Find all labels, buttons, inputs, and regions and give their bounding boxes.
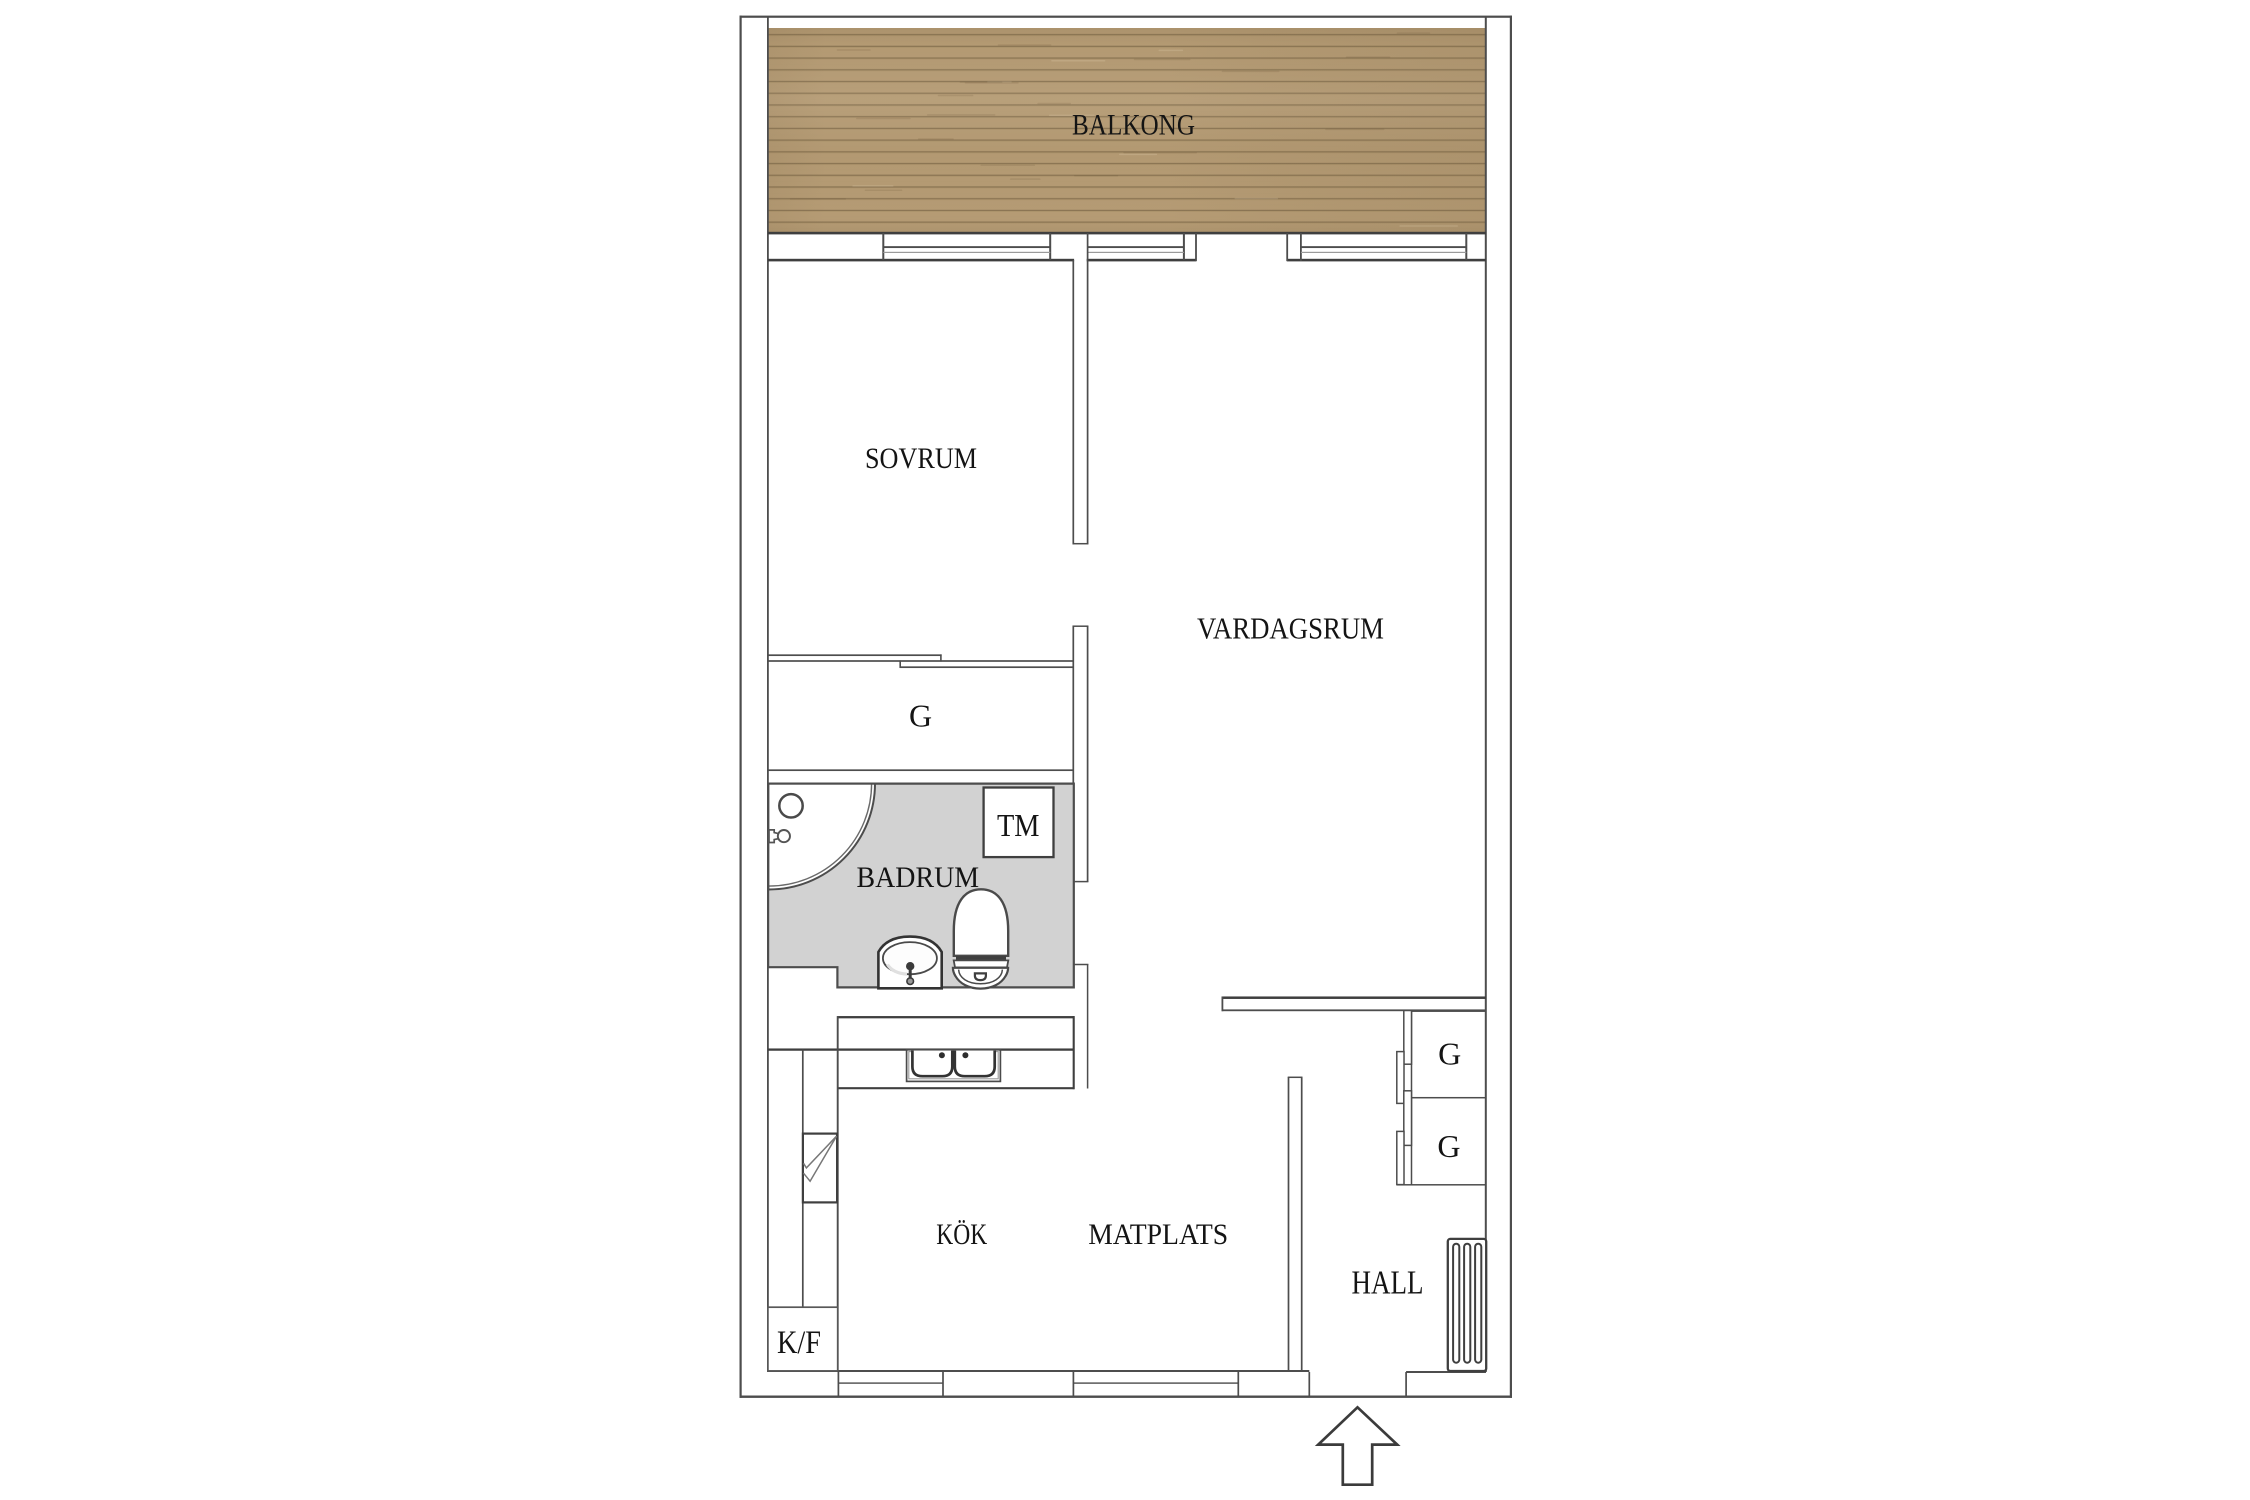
svg-text:G: G [1438,1035,1461,1071]
svg-text:BALKONG: BALKONG [1072,108,1195,141]
svg-text:K/F: K/F [777,1325,821,1361]
svg-text:TM: TM [997,807,1040,843]
svg-text:G: G [1437,1128,1460,1164]
svg-text:MATPLATS: MATPLATS [1088,1218,1228,1251]
svg-text:BADRUM: BADRUM [857,861,980,894]
svg-text:HALL: HALL [1352,1264,1424,1301]
svg-text:VARDAGSRUM: VARDAGSRUM [1197,611,1384,646]
svg-text:G: G [909,698,932,734]
svg-text:KÖK: KÖK [936,1218,987,1251]
svg-text:SOVRUM: SOVRUM [865,442,977,475]
